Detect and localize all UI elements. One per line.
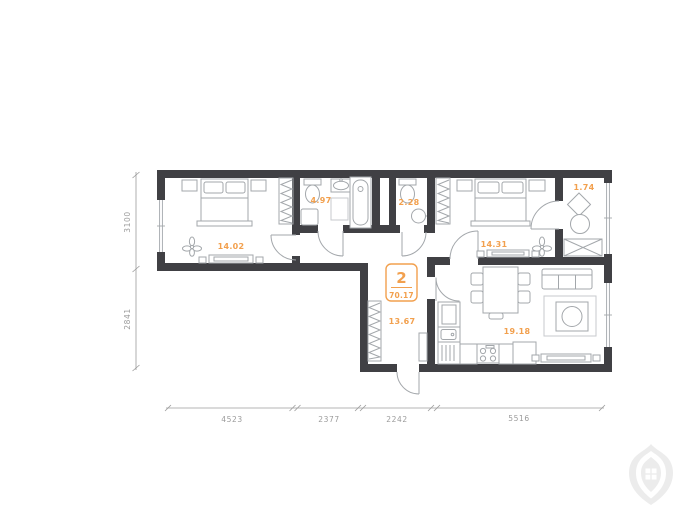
bathtub-icon xyxy=(350,177,371,228)
door-kitchen xyxy=(436,278,460,302)
dining-chair xyxy=(471,291,483,303)
furniture-hallway xyxy=(368,301,427,361)
kitchen-sink-icon xyxy=(438,327,460,342)
wardrobe xyxy=(279,178,293,224)
pillow xyxy=(226,182,245,193)
door-opening xyxy=(555,201,563,229)
nightstand xyxy=(457,180,472,191)
dresser xyxy=(199,255,263,263)
entrance-opening xyxy=(397,364,419,372)
dimensions-left: 3100 2841 xyxy=(123,172,140,371)
dim-label: 2242 xyxy=(386,415,408,424)
room-label-hallway: 13.67 xyxy=(389,317,416,326)
wall xyxy=(157,170,612,178)
window-opening xyxy=(604,183,612,254)
dining-chair xyxy=(518,291,530,303)
room-label-bathroom: 4.97 xyxy=(311,196,332,205)
door-opening xyxy=(400,225,424,233)
dim-label: 5516 xyxy=(508,414,530,423)
dining-chair xyxy=(518,273,530,285)
dim-label-vertical: 3100 xyxy=(123,211,132,233)
balcony-table xyxy=(568,193,591,216)
room-label-wc: 2.28 xyxy=(399,198,420,207)
dim-label: 2377 xyxy=(318,415,340,424)
door-entrance xyxy=(397,372,419,394)
wall xyxy=(389,178,396,233)
door-opening xyxy=(292,235,300,256)
nightstand xyxy=(529,180,545,191)
floor-plan-page: 14.02 4.97 2.28 14.31 1.74 13.67 19.18 2… xyxy=(0,0,688,516)
door-opening xyxy=(427,277,435,299)
pillow xyxy=(502,182,523,193)
dining-table xyxy=(483,267,518,313)
coffee-table xyxy=(556,302,588,331)
furniture-kitchen-living xyxy=(438,267,600,364)
dining-chair xyxy=(489,313,503,319)
floor-plan-image: 14.02 4.97 2.28 14.31 1.74 13.67 19.18 2… xyxy=(0,0,688,516)
dimensions-bottom: 4523 2377 2242 5516 xyxy=(165,405,605,424)
wall xyxy=(360,263,368,372)
room-label-kitchen-living: 19.18 xyxy=(504,327,531,336)
sofa xyxy=(542,269,592,289)
wall xyxy=(157,263,368,271)
dim-label-vertical: 2841 xyxy=(123,308,132,330)
door-opening xyxy=(318,225,343,233)
room-label-bedroom-1: 14.02 xyxy=(218,242,245,251)
stove-icon xyxy=(477,344,499,363)
bed xyxy=(197,179,252,226)
bath-mat xyxy=(331,198,348,220)
balcony-chair xyxy=(571,215,590,234)
tv-stand xyxy=(532,354,600,362)
dining-chair xyxy=(471,273,483,285)
room-label-bedroom-2: 14.31 xyxy=(481,240,508,249)
wall xyxy=(427,178,435,233)
nightstand xyxy=(182,180,197,191)
door-balcony xyxy=(531,201,559,229)
door-opening xyxy=(450,257,478,265)
round-sink-icon xyxy=(412,209,428,223)
dim-label: 4523 xyxy=(221,415,243,424)
hall-cabinet xyxy=(419,333,427,361)
pillow xyxy=(478,182,499,193)
watermark-logo-icon xyxy=(629,444,673,505)
door-wc xyxy=(402,232,426,256)
wall xyxy=(372,178,380,233)
door-bathroom xyxy=(318,231,343,256)
furniture-balcony xyxy=(564,193,602,256)
storage-box xyxy=(564,239,602,256)
kitchen-drawers xyxy=(438,342,460,364)
bed-footboard xyxy=(471,221,530,226)
bed-footboard xyxy=(197,221,252,226)
door-bedroom-2 xyxy=(450,231,478,259)
badge-total-area: 70.17 xyxy=(389,291,414,300)
kitchen-counter xyxy=(499,344,513,364)
pillow xyxy=(204,182,223,193)
plant-icon xyxy=(183,237,202,256)
hall-wardrobe xyxy=(368,301,381,361)
apartment-badge: 2 70.17 xyxy=(386,264,417,301)
washer-icon xyxy=(301,209,318,225)
dining-set xyxy=(471,267,530,319)
wardrobe xyxy=(436,178,450,224)
fridge-icon xyxy=(438,302,460,327)
room-label-balcony: 1.74 xyxy=(574,183,595,192)
nightstand xyxy=(251,180,266,191)
kitchen-counter xyxy=(460,344,477,364)
dresser xyxy=(477,250,539,257)
sink-icon xyxy=(331,179,351,192)
badge-room-count: 2 xyxy=(396,269,406,287)
bed xyxy=(471,179,530,226)
